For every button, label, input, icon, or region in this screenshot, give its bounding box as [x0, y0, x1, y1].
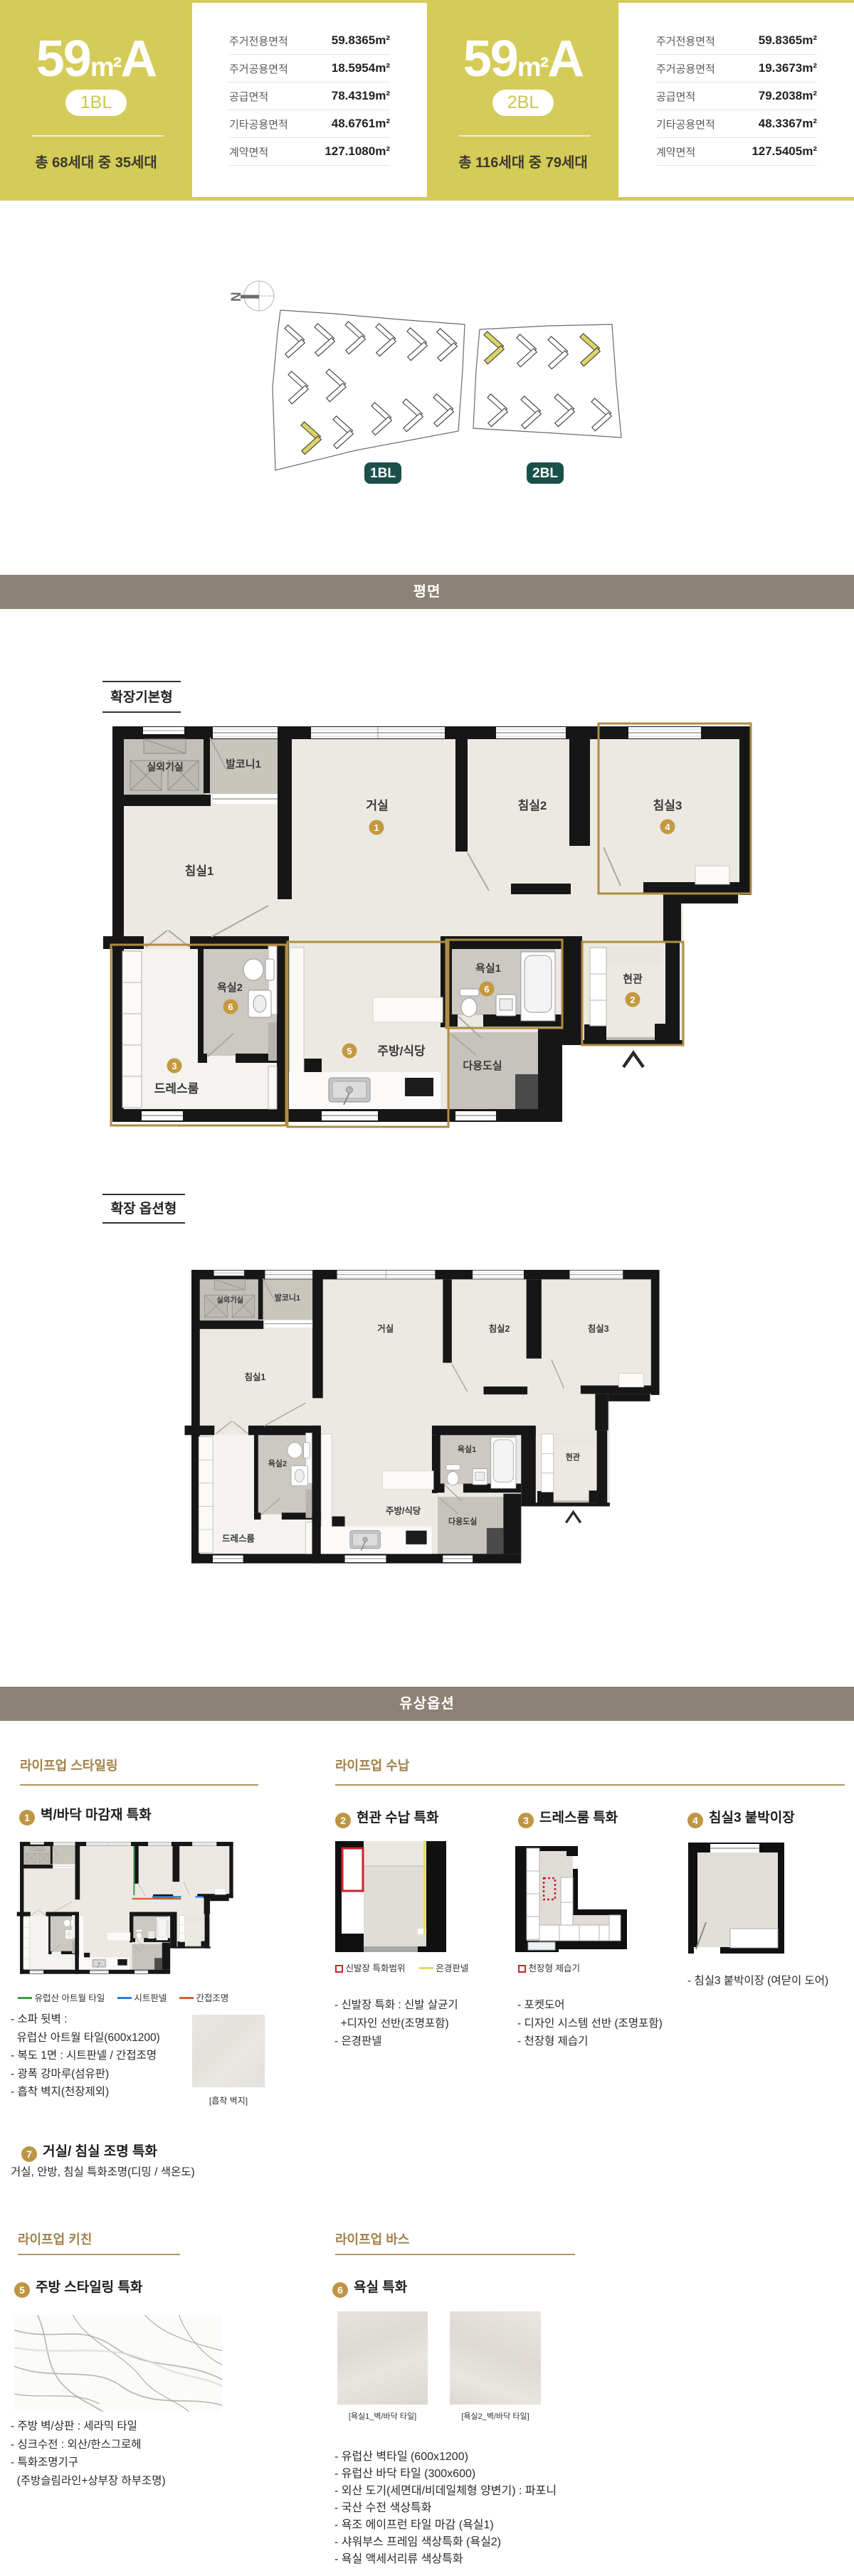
svg-text:1BL: 1BL	[370, 466, 396, 481]
svg-text:N: N	[229, 292, 244, 302]
svg-text:2BL: 2BL	[532, 466, 558, 481]
